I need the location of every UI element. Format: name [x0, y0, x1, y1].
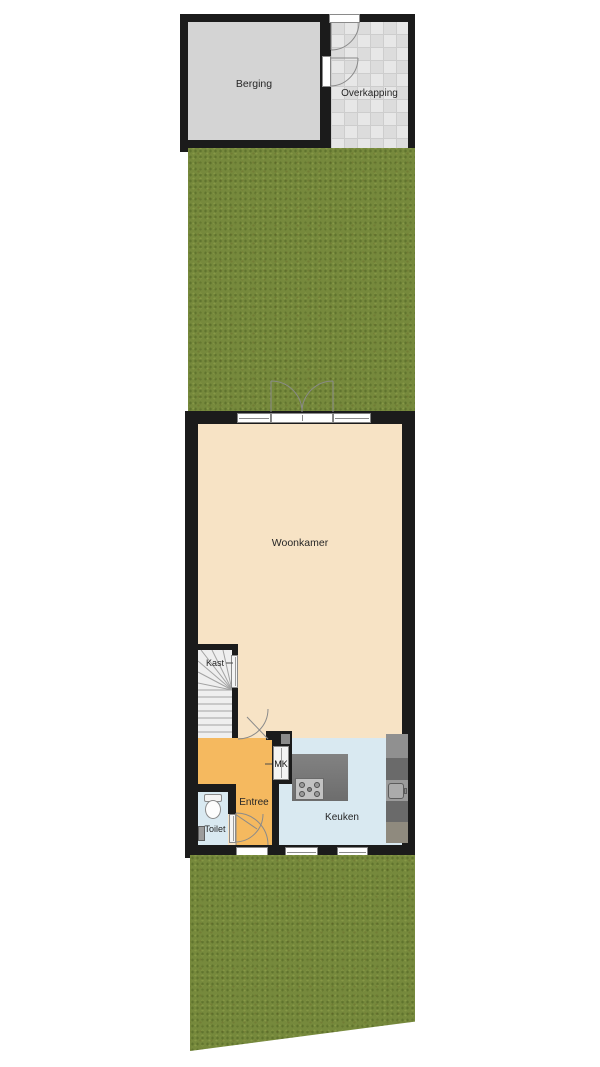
rear-window-right: [333, 413, 371, 423]
kitchen-counter-block: [386, 822, 408, 843]
burner-icon: [299, 782, 305, 788]
toilet-sink-icon: [198, 826, 205, 841]
french-doors-divider: [302, 415, 303, 421]
toilet-right-wall: [228, 792, 236, 814]
toilet-door: [229, 814, 236, 843]
kitchen-counter-block: [386, 734, 408, 758]
stairs-area: [198, 650, 232, 738]
toilet-bowl-icon: [205, 800, 221, 819]
kitchen-counter-block: [386, 758, 408, 780]
meterkast-door: [273, 746, 289, 780]
room-overkapping: [331, 21, 408, 148]
front-garden: [190, 855, 415, 1051]
burner-icon: [299, 791, 305, 797]
burner-icon: [307, 787, 312, 792]
room-berging: [188, 22, 320, 140]
kitchen-counter-block: [386, 801, 408, 822]
kast-door: [231, 655, 238, 688]
rear-window-left: [237, 413, 271, 423]
meterkast-panel: [281, 734, 290, 744]
toilet-top-wall: [185, 784, 236, 792]
sink-icon: [388, 783, 404, 799]
floorplan-canvas: Berging Overkapping Woonkamer: [0, 0, 600, 1067]
back-garden: [188, 148, 415, 412]
faucet-icon: [404, 788, 407, 794]
room-entree-lower: [236, 784, 272, 845]
stove-icon: [295, 778, 324, 800]
room-entree-upper: [198, 738, 272, 784]
overkapping-top-wall: [360, 14, 415, 22]
entree-kitchen-wall: [272, 784, 279, 845]
burner-icon: [314, 791, 320, 797]
berging-overkapping-door: [322, 56, 331, 87]
burner-icon: [314, 782, 320, 788]
overkapping-right-wall: [408, 14, 415, 148]
french-doors: [271, 413, 333, 423]
overkapping-entry-door: [329, 14, 360, 23]
room-keuken-notch: [279, 784, 292, 845]
stairs-icon: [198, 650, 232, 738]
